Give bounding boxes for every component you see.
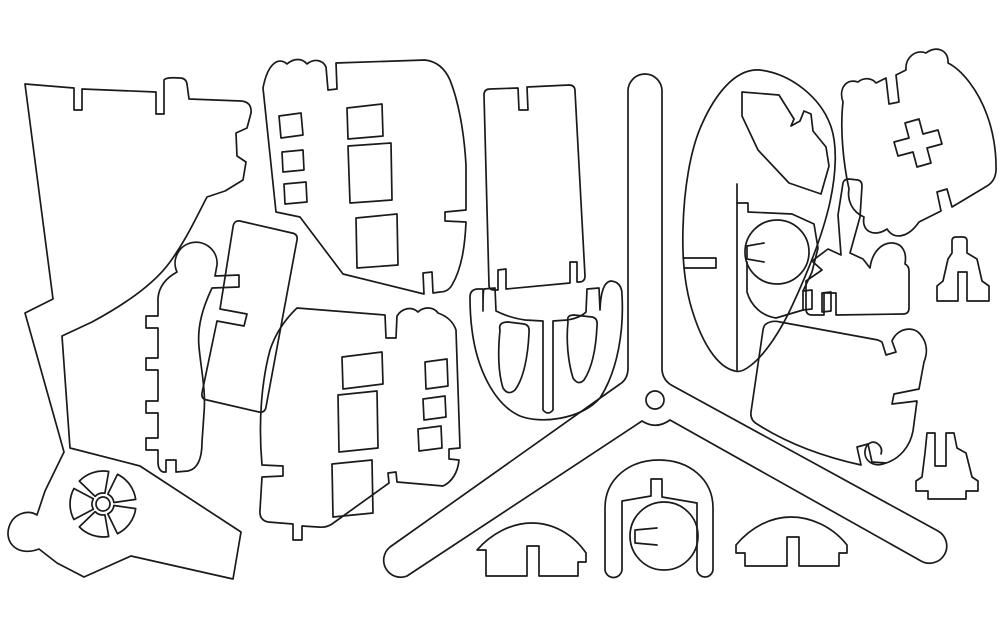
rotor-hub-hole: [646, 391, 664, 409]
panel-outline: [260, 308, 460, 540]
disc-keyway: [635, 528, 657, 545]
egg-slot: [803, 290, 812, 310]
wheel-hub-hole: [96, 497, 110, 511]
window-hole: [282, 150, 304, 172]
egg-lower-cut: [747, 262, 803, 318]
part-slanted-strut: [202, 221, 297, 412]
part-dome-skid-right: [736, 517, 847, 566]
window-hole: [347, 104, 383, 139]
window-hole: [338, 391, 378, 452]
window-hole: [423, 396, 446, 420]
wheel-sector: [108, 474, 136, 502]
window-hole: [342, 352, 383, 389]
hull-hole: [499, 322, 529, 393]
egg-outline: [683, 70, 835, 372]
egg-left-slot: [683, 258, 716, 268]
wheel-sector: [108, 506, 136, 534]
wheel-sector: [70, 489, 93, 520]
part-lower-window-panel: [260, 308, 460, 540]
window-hole: [425, 359, 448, 389]
part-cabin-egg: [683, 70, 835, 372]
part-tail-boom-plate: [484, 85, 585, 290]
part-arch-horseshoe: [605, 460, 713, 578]
egg-disc-hole: [745, 220, 809, 284]
window-hole: [348, 143, 392, 203]
plate-outline: [842, 49, 997, 236]
wheel-sector: [79, 471, 108, 496]
part-spoked-wheel-cutout: [70, 471, 136, 537]
egg-disc-keyway: [747, 243, 764, 262]
window-hole: [356, 214, 398, 268]
cross-hole: [894, 119, 942, 167]
window-hole: [279, 113, 303, 138]
wheel-sector: [79, 512, 108, 537]
window-hole: [418, 426, 442, 451]
hull-hole: [567, 315, 597, 383]
laser-cut-parts-drawing: [0, 0, 1002, 633]
part-dome-skid-left: [477, 523, 586, 576]
window-hole: [284, 182, 307, 204]
egg-step-cut: [737, 203, 818, 291]
part-keyed-disc: [630, 502, 698, 570]
egg-window-hole: [742, 92, 829, 194]
disc-outline: [630, 502, 698, 570]
part-crown-mid: [916, 433, 978, 499]
part-plate-cross-hole: [842, 49, 997, 236]
part-crown-top: [937, 237, 989, 301]
cut-pattern-canvas: [0, 0, 1002, 633]
